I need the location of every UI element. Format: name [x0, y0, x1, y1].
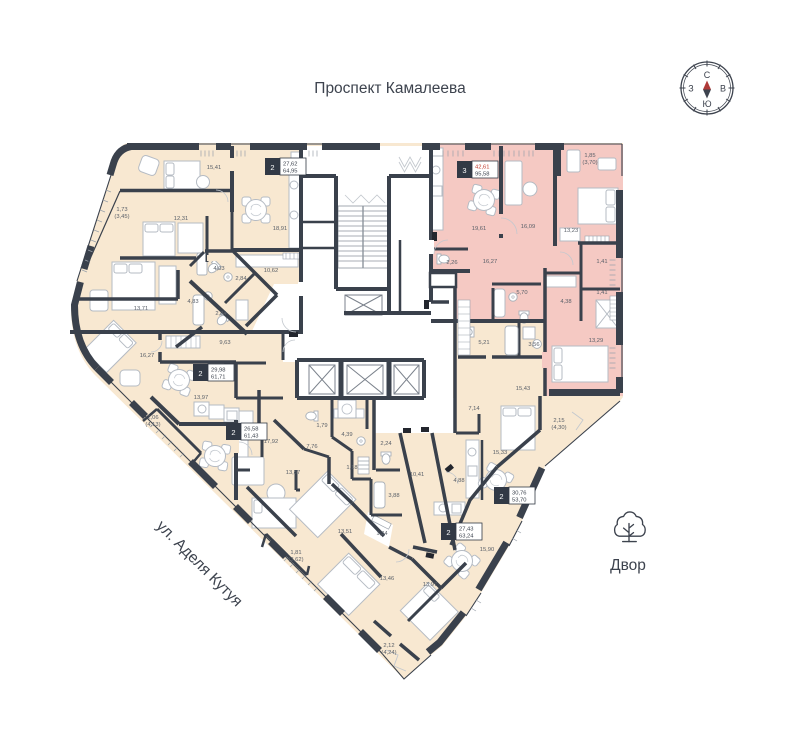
svg-text:2,06: 2,06: [147, 415, 158, 421]
svg-text:Ю: Ю: [702, 99, 711, 109]
svg-text:С: С: [704, 70, 711, 80]
svg-text:1,81: 1,81: [290, 550, 301, 556]
svg-text:3,88: 3,88: [388, 493, 399, 499]
svg-text:61,43: 61,43: [244, 434, 259, 440]
svg-text:9,63: 9,63: [219, 340, 230, 346]
svg-text:19,61: 19,61: [472, 226, 487, 232]
svg-text:13,23: 13,23: [564, 228, 579, 234]
svg-text:29,98: 29,98: [211, 368, 226, 374]
svg-text:7,14: 7,14: [468, 406, 480, 412]
svg-text:2,26: 2,26: [446, 260, 457, 266]
svg-text:1,79: 1,79: [316, 423, 327, 429]
svg-text:2,24: 2,24: [380, 441, 392, 447]
svg-text:61,71: 61,71: [211, 375, 226, 381]
svg-text:4,03: 4,03: [213, 266, 224, 272]
svg-text:1,85: 1,85: [584, 153, 595, 159]
svg-text:13,51: 13,51: [338, 529, 353, 535]
svg-text:27,62: 27,62: [283, 162, 298, 168]
svg-text:1,41: 1,41: [596, 259, 607, 265]
svg-text:2: 2: [270, 163, 274, 172]
svg-text:13,97: 13,97: [194, 395, 209, 401]
svg-text:1,73: 1,73: [116, 207, 127, 213]
svg-text:2,15: 2,15: [553, 418, 564, 424]
svg-text:4,83: 4,83: [187, 299, 198, 305]
svg-text:3,56: 3,56: [528, 342, 539, 348]
svg-text:2: 2: [446, 528, 450, 537]
svg-text:15,33: 15,33: [493, 450, 508, 456]
svg-text:1,41: 1,41: [596, 290, 607, 296]
svg-text:5,21: 5,21: [478, 340, 489, 346]
svg-text:2: 2: [499, 492, 503, 501]
svg-text:Проспект Камалеева: Проспект Камалеева: [314, 80, 466, 97]
svg-text:З: З: [688, 84, 693, 94]
svg-text:(4,13): (4,13): [145, 422, 160, 428]
svg-text:2: 2: [198, 369, 202, 378]
svg-text:10,62: 10,62: [264, 268, 279, 274]
svg-text:16,09: 16,09: [521, 224, 536, 230]
svg-text:(4,30): (4,30): [551, 425, 566, 431]
svg-text:ул. Аделя Кутуя: ул. Аделя Кутуя: [153, 517, 246, 610]
svg-text:1,18: 1,18: [346, 465, 357, 471]
svg-text:18,91: 18,91: [273, 226, 288, 232]
svg-text:13,87: 13,87: [286, 470, 301, 476]
svg-text:Двор: Двор: [610, 557, 646, 574]
svg-text:7,76: 7,76: [306, 444, 317, 450]
svg-text:(3,62): (3,62): [288, 557, 303, 563]
svg-text:27,43: 27,43: [459, 527, 474, 533]
svg-text:13,46: 13,46: [380, 576, 395, 582]
svg-text:12,31: 12,31: [174, 216, 189, 222]
svg-text:64,95: 64,95: [283, 169, 298, 175]
svg-text:16,27: 16,27: [140, 353, 155, 359]
svg-text:53,70: 53,70: [512, 498, 527, 504]
svg-text:13,71: 13,71: [134, 306, 149, 312]
svg-text:10,41: 10,41: [410, 472, 425, 478]
svg-text:15,41: 15,41: [207, 165, 222, 171]
svg-text:В: В: [720, 84, 726, 94]
svg-text:95,58: 95,58: [475, 172, 490, 178]
svg-text:15,43: 15,43: [516, 386, 531, 392]
svg-text:42,61: 42,61: [475, 165, 490, 171]
svg-text:2,84: 2,84: [235, 276, 247, 282]
svg-text:63,24: 63,24: [459, 534, 474, 540]
svg-text:2: 2: [231, 428, 235, 437]
svg-text:2,84: 2,84: [215, 311, 227, 317]
svg-text:4,38: 4,38: [560, 299, 571, 305]
svg-text:16,27: 16,27: [483, 259, 498, 265]
svg-text:5,70: 5,70: [516, 290, 527, 296]
svg-text:(3,70): (3,70): [582, 160, 597, 166]
svg-text:1,34: 1,34: [376, 531, 388, 537]
svg-text:4,88: 4,88: [453, 478, 464, 484]
svg-text:(4,24): (4,24): [381, 650, 396, 656]
svg-text:15,90: 15,90: [480, 547, 495, 553]
svg-text:30,76: 30,76: [512, 491, 527, 497]
svg-text:26,58: 26,58: [244, 427, 259, 433]
svg-text:13,29: 13,29: [589, 338, 604, 344]
svg-text:4,39: 4,39: [341, 432, 352, 438]
svg-text:(3,45): (3,45): [114, 214, 129, 220]
svg-text:13,97: 13,97: [423, 582, 438, 588]
svg-text:2,12: 2,12: [383, 643, 394, 649]
svg-text:3: 3: [462, 166, 466, 175]
